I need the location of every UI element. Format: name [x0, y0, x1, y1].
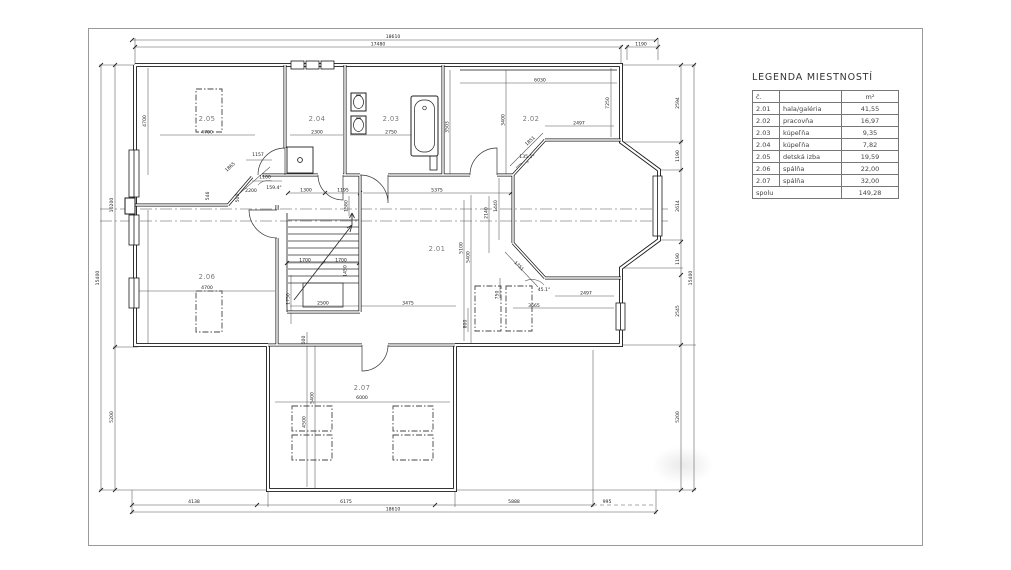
- legend-header-area: m²: [842, 91, 899, 103]
- dim-label: 4700: [201, 130, 213, 136]
- dim-label: 2594: [675, 97, 681, 109]
- interior-walls: [125, 65, 621, 345]
- dim-label: 1195: [337, 188, 349, 194]
- legend-total-area: 149,28: [842, 187, 899, 199]
- dim-label: 4138: [188, 499, 200, 505]
- bathtub-icon: [411, 96, 438, 156]
- dim-label: 2497: [573, 121, 585, 127]
- dim-label: 500: [235, 194, 241, 203]
- legend-row: 2.05 detská izba 19,59: [753, 151, 899, 163]
- dim-label: 1700: [335, 258, 347, 264]
- dim-label: 5888: [508, 499, 520, 505]
- dim-label: 3503: [445, 121, 451, 133]
- dim-label: 18610: [386, 507, 401, 513]
- door-swings: [249, 148, 497, 371]
- dim-label: 1750: [286, 293, 292, 305]
- dim-label: 4700: [142, 115, 148, 127]
- dim-label: 2614: [675, 200, 681, 212]
- dim-label: 1190: [635, 42, 647, 48]
- dim-label: 2140: [484, 207, 490, 219]
- dim-label: 1751: [512, 260, 525, 273]
- dim-label: 7250: [605, 97, 611, 109]
- room-label-204: 2.04: [309, 115, 326, 123]
- room-label-202: 2.02: [523, 115, 540, 123]
- legend-total-label: spolu: [753, 187, 842, 199]
- dim-label: 6175: [340, 499, 352, 505]
- axis-lines: [100, 209, 668, 221]
- dim-label: 6030: [534, 78, 546, 84]
- dim-label: 5200: [675, 411, 681, 423]
- door-204: [318, 175, 343, 200]
- dim-label: 546: [205, 192, 211, 201]
- dim-label: 5375: [431, 188, 443, 194]
- legend-title: LEGENDA MIESTNOSTÍ: [752, 72, 899, 83]
- dim-label: 1100: [259, 175, 271, 181]
- dim-label: 6000: [356, 395, 368, 401]
- dim-label: 1580: [344, 200, 350, 212]
- drawing-sheet: 2.01 2.02 2.03 2.04 2.05 2.06 2.07 18610…: [0, 0, 1011, 570]
- dim-label: 10200: [109, 198, 115, 213]
- room-label-205: 2.05: [199, 115, 216, 123]
- door-207: [362, 345, 388, 371]
- dim-label: 1865: [224, 161, 237, 173]
- dim-label: 17480: [371, 42, 386, 48]
- dim-label: 2545: [675, 305, 681, 317]
- room-label-203: 2.03: [383, 115, 400, 123]
- dim-label: 1190: [675, 253, 681, 265]
- legend-row: 2.07 spálňa 32,00: [753, 175, 899, 187]
- door-206: [249, 210, 277, 238]
- dim-label: 600: [301, 336, 307, 345]
- legend-header-row: č. m²: [753, 91, 899, 103]
- dim-label: 2300: [311, 130, 323, 136]
- dim-label: 4700: [201, 285, 213, 291]
- room-labels: 2.01 2.02 2.03 2.04 2.05 2.06 2.07: [199, 115, 540, 392]
- shower-icon: [287, 147, 313, 173]
- legend-header-no: č.: [753, 91, 780, 103]
- dim-label: 159.4°: [266, 185, 281, 191]
- dim-label: 4500: [302, 416, 308, 428]
- room-label-201: 2.01: [429, 245, 446, 253]
- dim-label: 995: [603, 499, 612, 505]
- room-label-206: 2.06: [199, 273, 216, 281]
- dim-label: 45.1°: [538, 287, 551, 293]
- dim-label: 1157: [252, 152, 264, 158]
- legend-row: 2.03 kúpeľňa 9,35: [753, 127, 899, 139]
- dim-label: 2500: [317, 301, 329, 307]
- room-label-207: 2.07: [354, 384, 371, 392]
- dim-label: 1440: [493, 200, 499, 212]
- dim-label: 5400: [310, 392, 316, 404]
- watermark: [652, 446, 714, 484]
- dim-label: 1300: [300, 188, 312, 194]
- dim-label: 5200: [109, 411, 115, 423]
- dim-label: 135.1°: [519, 154, 534, 160]
- dim-label: 15400: [95, 271, 101, 286]
- dim-label: 1700: [299, 258, 311, 264]
- legend-row: 2.02 pracovňa 16,97: [753, 115, 899, 127]
- furniture: [196, 89, 532, 460]
- sink-icons: [351, 93, 366, 134]
- legend-row: 2.04 kúpeľňa 7,82: [753, 139, 899, 151]
- legend-table: č. m² 2.01 hala/galéria 41,55 2.02 praco…: [752, 90, 899, 199]
- legend-row: 2.06 spálňa 22,00: [753, 163, 899, 175]
- dimension-labels: 18610 17480 1190 15400 10200 5200 2594 1…: [95, 34, 694, 513]
- dim-label: 2750: [385, 130, 397, 136]
- dim-label: 3400: [501, 114, 507, 126]
- dim-label: 5400: [466, 251, 472, 263]
- dim-label: 2200: [245, 188, 257, 194]
- door-202: [470, 148, 497, 175]
- dim-label: 1190: [675, 150, 681, 162]
- dim-label: 800: [463, 320, 469, 329]
- legend-panel: LEGENDA MIESTNOSTÍ č. m² 2.01 hala/galér…: [752, 72, 899, 199]
- dim-label: 3475: [402, 301, 414, 307]
- dim-label: 2497: [580, 291, 592, 297]
- dim-label: 5100: [459, 242, 465, 254]
- dim-label: 750: [495, 291, 501, 300]
- dim-label: 15400: [688, 271, 694, 286]
- legend-row: 2.01 hala/galéria 41,55: [753, 103, 899, 115]
- legend-total-row: spolu 149,28: [753, 187, 899, 199]
- dim-label: 1450: [343, 265, 349, 277]
- legend-header-name: [780, 91, 842, 103]
- door-203: [360, 175, 388, 203]
- dim-label: 18610: [386, 34, 401, 40]
- dim-label: 3665: [528, 303, 540, 309]
